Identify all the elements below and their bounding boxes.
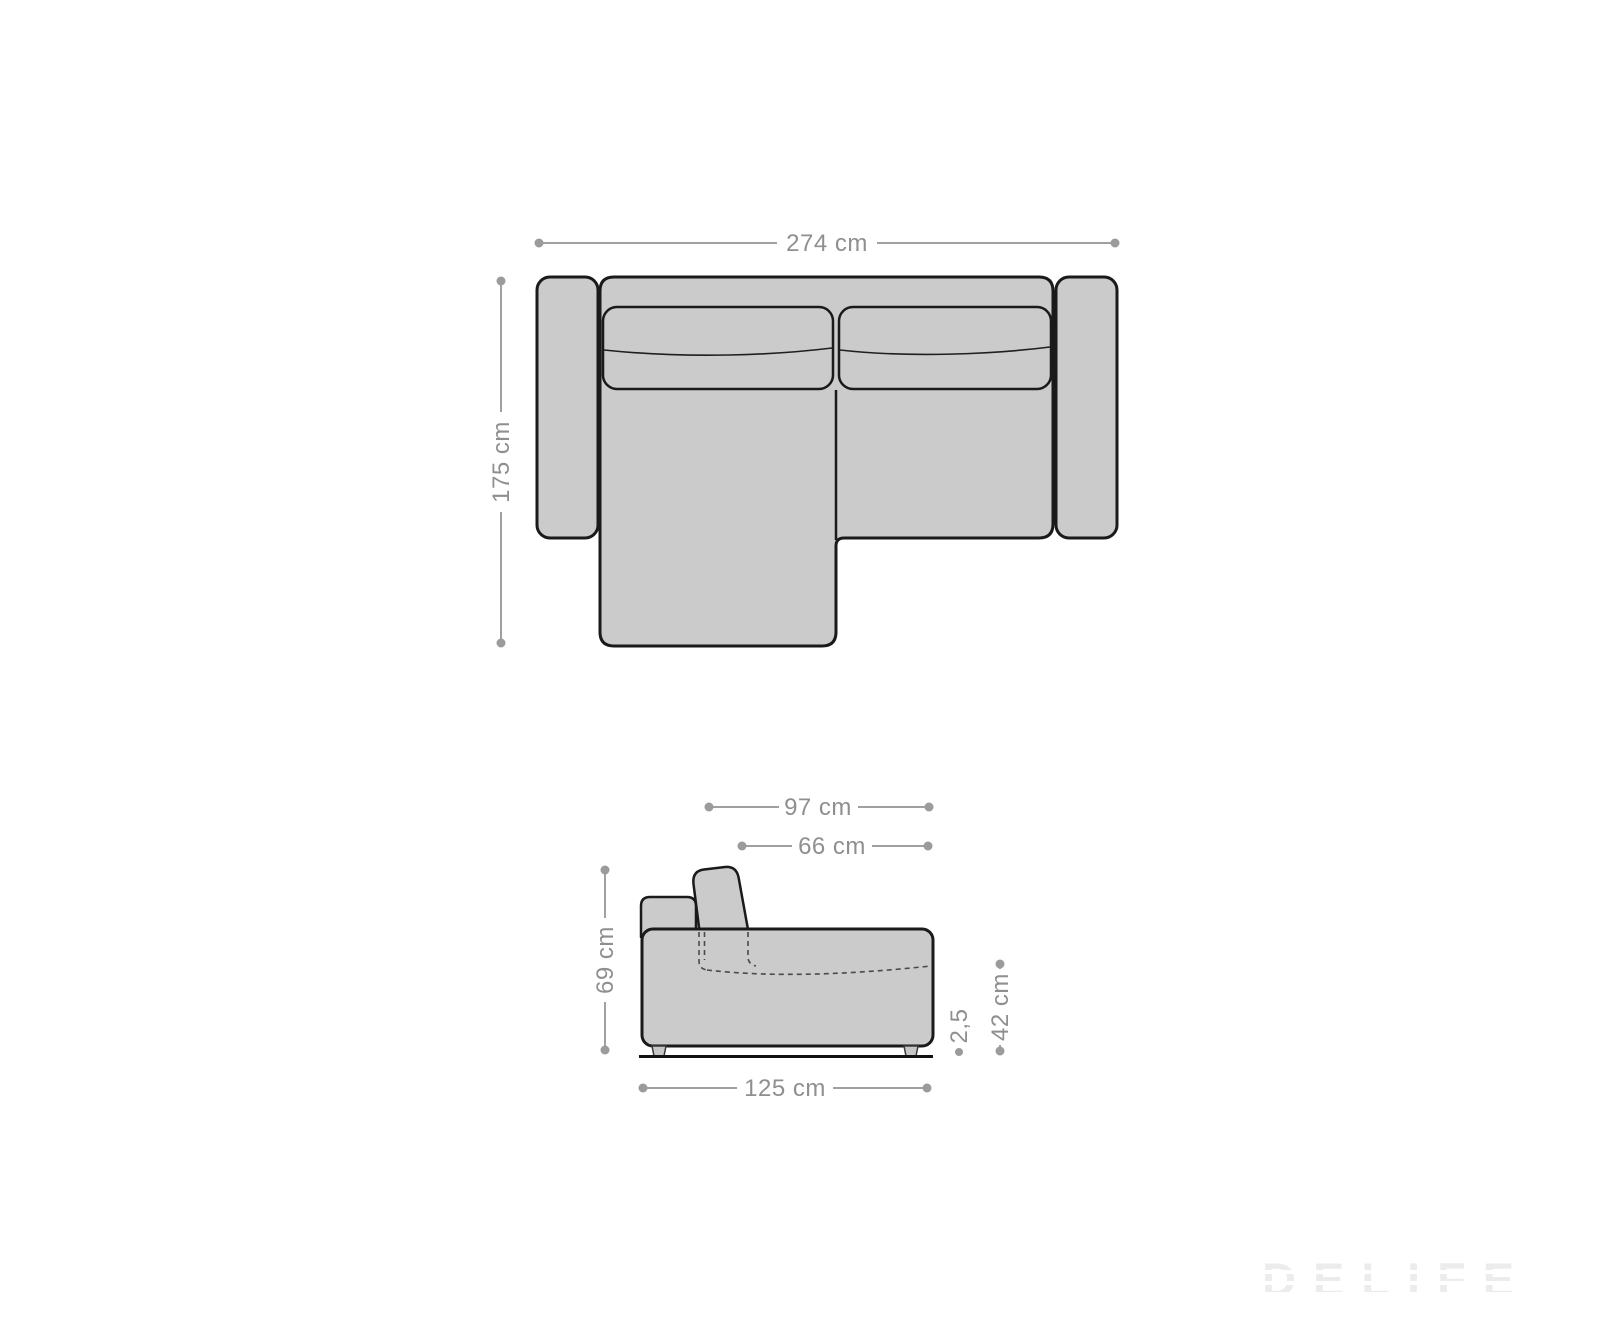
dim-label-base-clearance: 2,5 <box>946 1009 973 1044</box>
back-cushion-right <box>839 307 1051 389</box>
dim-label-total-depth: 125 cm <box>744 1075 826 1102</box>
dim-endpoint-dot <box>601 866 610 875</box>
brand-watermark: DELIFE <box>1262 1252 1582 1302</box>
dim-endpoint-dot <box>738 842 747 851</box>
dim-label-overall-depth: 175 cm <box>488 421 515 503</box>
dim-endpoint-dot <box>639 1084 648 1093</box>
top-view: 274 cm 175 cm <box>488 230 1120 648</box>
dim-endpoint-dot <box>601 1046 610 1055</box>
right-armrest-top <box>1056 277 1117 538</box>
sofa-top-view <box>537 277 1117 646</box>
sofa-side-view <box>639 867 933 1057</box>
dim-label-back-height: 69 cm <box>592 926 619 994</box>
dim-endpoint-dot <box>705 803 714 812</box>
dim-base-clearance: 2,5 <box>946 1009 973 1056</box>
dim-endpoint-dot <box>924 842 933 851</box>
left-armrest-top <box>537 277 598 538</box>
dim-total-depth: 125 cm <box>639 1075 932 1102</box>
dim-overall-width: 274 cm <box>535 230 1120 257</box>
head-cushion-tilted <box>693 867 749 935</box>
dimension-diagram: 274 cm 175 cm <box>0 0 1600 1333</box>
dim-endpoint-dot <box>996 1047 1005 1056</box>
dim-back-depth: 97 cm <box>705 794 934 821</box>
sofa-body-side <box>642 929 933 1046</box>
dim-endpoint-dot <box>955 1048 963 1056</box>
side-view: 97 cm 66 cm 69 cm <box>592 794 1014 1102</box>
back-cushion-left <box>603 307 833 389</box>
dim-endpoint-dot <box>925 803 934 812</box>
dim-endpoint-dot <box>535 239 544 248</box>
dim-endpoint-dot <box>923 1084 932 1093</box>
dim-back-height: 69 cm <box>592 866 619 1055</box>
sofa-foot-right <box>904 1046 918 1056</box>
dim-label-seat-height: 42 cm <box>987 973 1014 1041</box>
dim-endpoint-dot <box>497 277 506 286</box>
dim-overall-depth: 175 cm <box>488 277 515 648</box>
dim-label-overall-width: 274 cm <box>786 230 868 257</box>
dim-endpoint-dot <box>497 639 506 648</box>
dim-label-seat-depth: 66 cm <box>798 833 866 860</box>
dim-endpoint-dot <box>1111 239 1120 248</box>
dim-label-back-depth: 97 cm <box>784 794 852 821</box>
dim-seat-height: 42 cm <box>987 960 1014 1056</box>
diagram-svg: 274 cm 175 cm <box>0 0 1600 1333</box>
sofa-foot-left <box>652 1046 666 1056</box>
dim-endpoint-dot <box>996 960 1005 969</box>
dim-seat-depth: 66 cm <box>738 833 933 860</box>
